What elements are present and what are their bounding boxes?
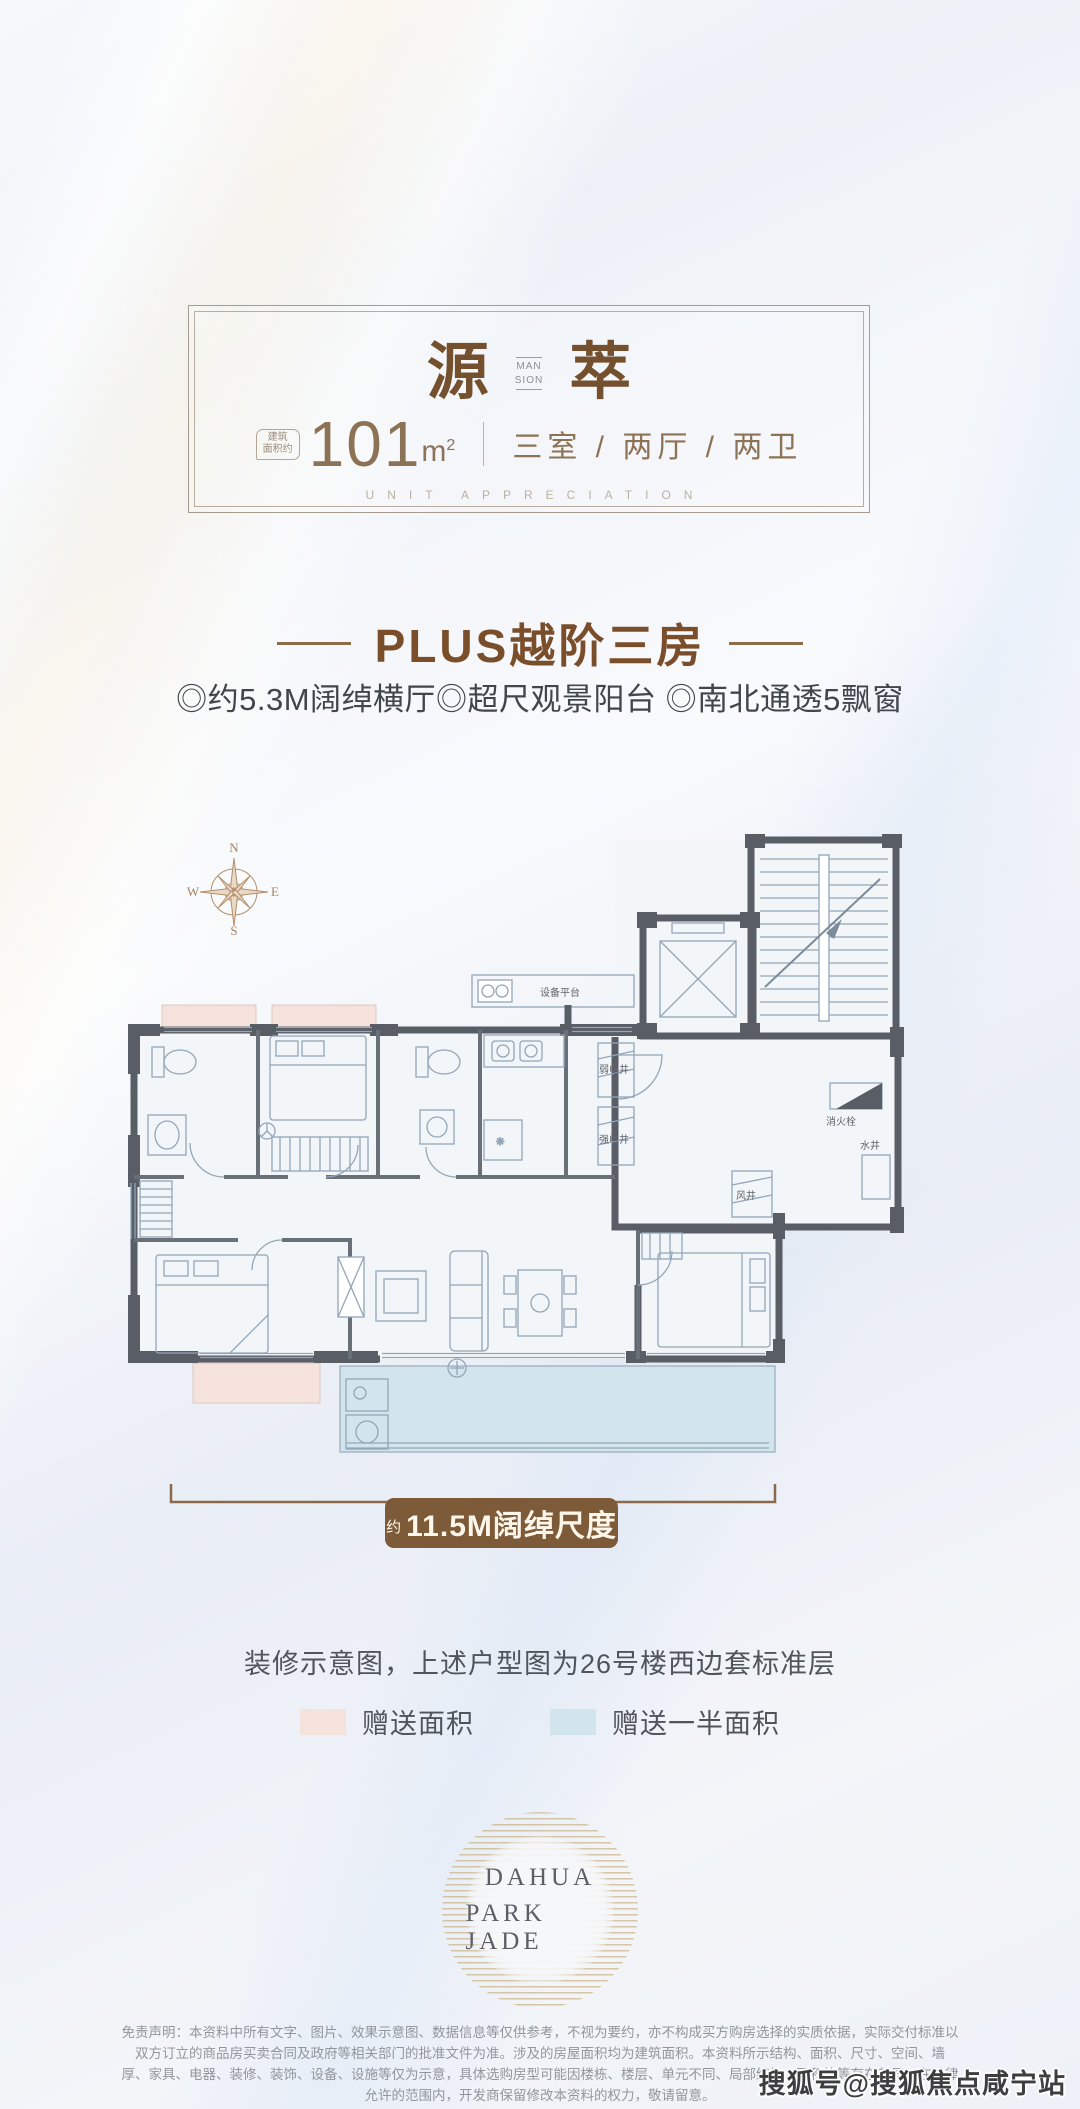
disclaimer-line1: 免责声明：本资料中所有文字、图片、效果示意图、数据信息等仅供参考，不视为要约，亦…: [115, 2022, 965, 2064]
brand-en-bottom: SION: [515, 375, 543, 386]
brand-mid-ornament: MAN SION: [515, 357, 543, 390]
logo-line1: DAHUA: [485, 1864, 595, 1892]
header-card-inner-border: 源 MAN SION 萃 建筑 面积约 101 m2 三室 / 两厅 / 两卫: [194, 311, 864, 507]
brand-logo: DAHUA PARK JADE: [442, 1812, 638, 2008]
brand-char-second: 萃: [569, 342, 631, 404]
fire-hydrant-label: 消火栓: [826, 1115, 856, 1128]
headline: PLUS越阶三房: [0, 610, 1080, 676]
feature-line: ◎约5.3M阔绰横厅◎超尺观景阳台 ◎南北通透5飘窗: [0, 674, 1080, 719]
sohu-watermark: 搜狐号@搜狐焦点咸宁站: [759, 2062, 1066, 2101]
area-unit: m2: [421, 435, 455, 476]
area-note-line1: 建筑: [268, 432, 288, 443]
plan-caption: 装修示意图，上述户型图为26号楼西边套标准层: [0, 1642, 1080, 1681]
dimension-value: 11.5M阔绰尺度: [406, 1501, 617, 1545]
brand-char-first: 源: [427, 342, 489, 404]
poster-page: 源 MAN SION 萃 建筑 面积约 101 m2 三室 / 两厅 / 两卫: [0, 0, 1080, 2109]
headline-title: PLUS越阶三房: [375, 610, 706, 676]
balcony-half-gift-area: [340, 1366, 775, 1452]
room-layout-text: 三室 / 两厅 / 两卫: [512, 422, 802, 466]
logo-line2: PARK JADE: [466, 1900, 615, 1956]
legend-swatch-half-gift: [550, 1709, 596, 1735]
strong-electric-label: 强电井: [599, 1133, 629, 1146]
water-shaft-label: 水井: [860, 1139, 880, 1152]
brand-title: 源 MAN SION 萃: [427, 342, 631, 404]
svg-text:✳: ✳: [496, 1137, 504, 1148]
vertical-divider: [483, 422, 484, 466]
ornament-line-bottom: [516, 389, 542, 390]
air-shaft-label: 风井: [736, 1189, 756, 1202]
equipment-platform: 设备平台: [472, 975, 634, 1007]
area-value: 101: [309, 412, 422, 476]
headline-dash-right: [729, 642, 803, 645]
legend-swatch-gift: [300, 1709, 346, 1735]
dimension-prefix: 约: [386, 1516, 401, 1537]
legend-label-half-gift: 赠送一半面积: [612, 1702, 780, 1741]
area-row: 建筑 面积约 101 m2 三室 / 两厅 / 两卫: [256, 412, 803, 476]
dimension-badge: 约 11.5M阔绰尺度: [385, 1498, 618, 1548]
floorplan: 设备平台: [120, 815, 905, 1465]
brand-en-top: MAN: [516, 361, 541, 372]
legend-label-gift: 赠送面积: [362, 1702, 474, 1741]
logo-text-area: DAHUA PARK JADE: [466, 1836, 615, 1985]
area-note-line2: 面积约: [263, 444, 293, 455]
folding-door: [338, 1257, 364, 1317]
legend: 赠送面积 赠送一半面积: [0, 1702, 1080, 1741]
ornament-line-top: [516, 357, 542, 358]
headline-dash-left: [277, 642, 351, 645]
header-card: 源 MAN SION 萃 建筑 面积约 101 m2 三室 / 两厅 / 两卫: [188, 305, 870, 513]
weak-electric-label: 弱电井: [599, 1063, 629, 1076]
tagline-en: UNIT APPRECIATION: [353, 488, 706, 502]
area-note-badge: 建筑 面积约: [256, 429, 300, 460]
equipment-platform-label: 设备平台: [540, 986, 580, 999]
